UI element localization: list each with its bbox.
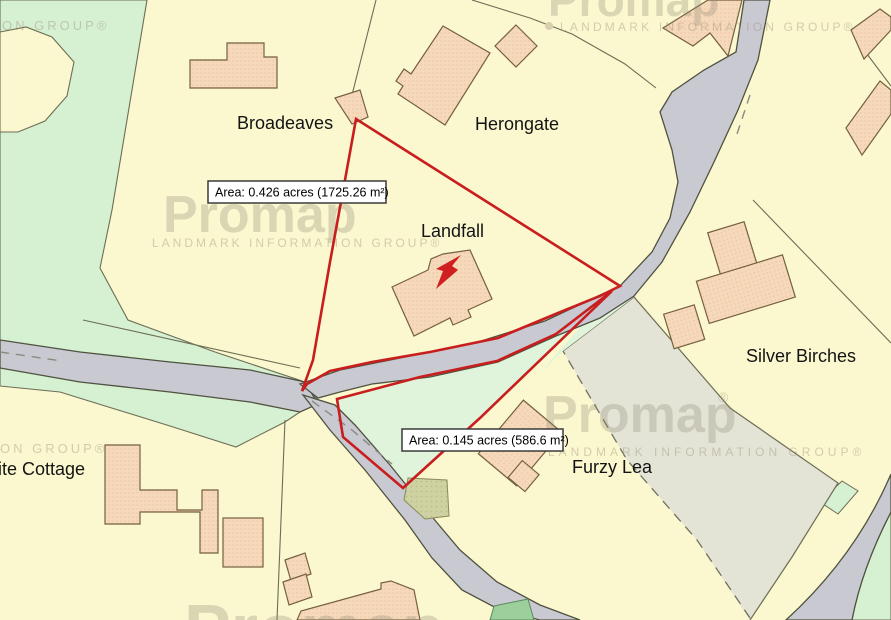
promap-watermark-bullet-icon	[545, 22, 553, 30]
label-landfall: Landfall	[421, 221, 484, 241]
promap-map-view[interactable]: ON GROUP® Promap LANDMARK INFORMATION GR…	[0, 0, 891, 620]
area-annotation-text: Area: 0.145 acres (586.6 m²)	[409, 434, 569, 448]
label-furzy-lea: Furzy Lea	[572, 457, 653, 477]
promap-watermark-tagline: LANDMARK INFORMATION GROUP®	[152, 236, 442, 250]
map-canvas[interactable]: ON GROUP® Promap LANDMARK INFORMATION GR…	[0, 0, 891, 620]
promap-watermark-fragment: ON GROUP®	[0, 441, 107, 456]
building-cottage-annex	[223, 518, 263, 567]
promap-watermark-registered: ®	[718, 389, 729, 405]
promap-watermark-brand: Promap	[184, 590, 445, 620]
label-broadeaves: Broadeaves	[237, 113, 333, 133]
label-silver-birches: Silver Birches	[746, 346, 856, 366]
label-herongate: Herongate	[475, 114, 559, 134]
promap-watermark-fragment: ON GROUP®	[2, 18, 109, 33]
promap-watermark-brand: Promap	[543, 386, 737, 444]
area-annotation-plot-1[interactable]: Area: 0.426 acres (1725.26 m²)	[208, 181, 389, 203]
promap-watermark-tagline: LANDMARK INFORMATION GROUP®	[560, 20, 856, 34]
area-annotation-text: Area: 0.426 acres (1725.26 m²)	[215, 186, 389, 200]
label-cottage: ite Cottage	[0, 459, 85, 479]
area-annotation-plot-2[interactable]: Area: 0.145 acres (586.6 m²)	[402, 429, 569, 451]
